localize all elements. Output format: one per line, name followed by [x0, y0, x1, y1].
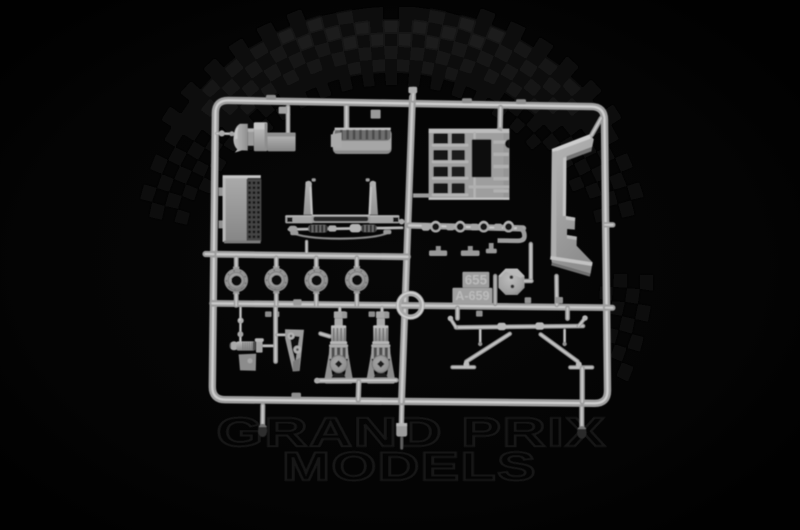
svg-text:A-659: A-659 [455, 289, 489, 303]
svg-text:655: 655 [465, 273, 488, 288]
svg-text:MODELS: MODELS [282, 444, 537, 489]
